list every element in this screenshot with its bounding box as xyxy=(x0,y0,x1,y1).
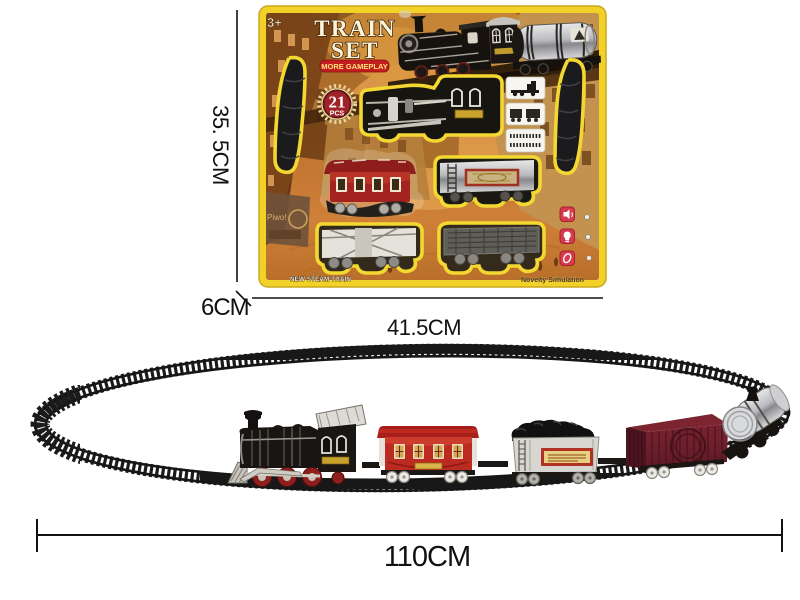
svg-text:Novelty Simulation: Novelty Simulation xyxy=(521,277,584,284)
svg-text:110CM: 110CM xyxy=(384,541,470,573)
svg-text:NEW STEAM TRAIN: NEW STEAM TRAIN xyxy=(290,276,351,283)
svg-text:41.5CM: 41.5CM xyxy=(387,315,461,340)
svg-text:21: 21 xyxy=(329,93,346,112)
svg-text:MORE GAMEPLAY: MORE GAMEPLAY xyxy=(321,62,387,71)
svg-text:6CM: 6CM xyxy=(201,294,249,321)
svg-text:PCS: PCS xyxy=(330,111,345,118)
svg-text:Piwo!: Piwo! xyxy=(267,213,287,222)
svg-text:3+: 3+ xyxy=(267,15,282,30)
svg-text:SET: SET xyxy=(331,38,379,63)
svg-text:35. 5CM: 35. 5CM xyxy=(208,105,233,185)
